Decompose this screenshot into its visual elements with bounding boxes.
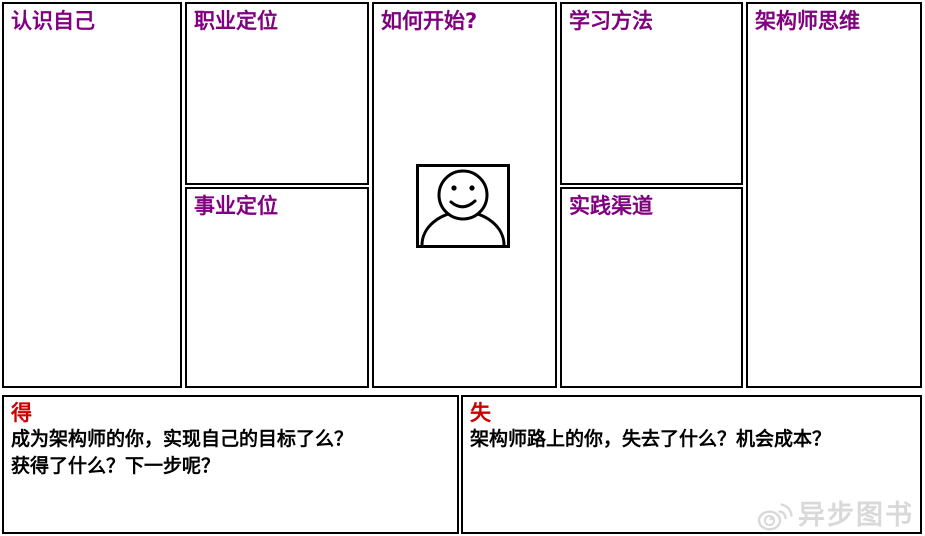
- watermark-text: 异步图书: [798, 501, 914, 531]
- cell-practice-channels-title: 实践渠道: [569, 193, 734, 219]
- watermark: 异步图书: [757, 500, 914, 531]
- gain-text-line-1: 成为架构师的你，实现自己的目标了么？: [11, 426, 450, 453]
- cell-loss: 失 架构师路上的你，失去了什么？机会成本？ 异步图书: [461, 395, 922, 534]
- cell-career-positioning-title: 职业定位: [194, 8, 360, 34]
- weibo-eye-icon: [757, 500, 793, 531]
- cell-architect-mindset-title: 架构师思维: [755, 8, 913, 34]
- cell-learning-methods: 学习方法: [560, 2, 743, 185]
- cell-learning-methods-title: 学习方法: [569, 8, 734, 34]
- cell-know-yourself: 认识自己: [2, 2, 182, 388]
- cell-career-positioning: 职业定位: [185, 2, 369, 185]
- cell-how-to-start: 如何开始?: [372, 2, 557, 388]
- loss-label: 失: [470, 401, 913, 426]
- cell-know-yourself-title: 认识自己: [11, 8, 173, 34]
- cell-practice-channels: 实践渠道: [560, 187, 743, 388]
- loss-text: 架构师路上的你，失去了什么？机会成本？: [470, 426, 913, 453]
- gain-label: 得: [11, 401, 450, 426]
- gain-text-line-2: 获得了什么？下一步呢？: [11, 453, 450, 480]
- cell-business-positioning-title: 事业定位: [194, 193, 360, 219]
- cell-how-to-start-title: 如何开始?: [381, 8, 548, 34]
- cell-business-positioning: 事业定位: [185, 187, 369, 388]
- architect-canvas-diagram: 认识自己 职业定位 事业定位 如何开始? 学习方法 实践渠道: [0, 0, 925, 536]
- person-smiley-svg: [419, 167, 507, 245]
- cell-gain: 得 成为架构师的你，实现自己的目标了么？ 获得了什么？下一步呢？: [2, 395, 459, 534]
- cell-architect-mindset: 架构师思维: [746, 2, 922, 388]
- person-smiley-icon: [416, 164, 510, 248]
